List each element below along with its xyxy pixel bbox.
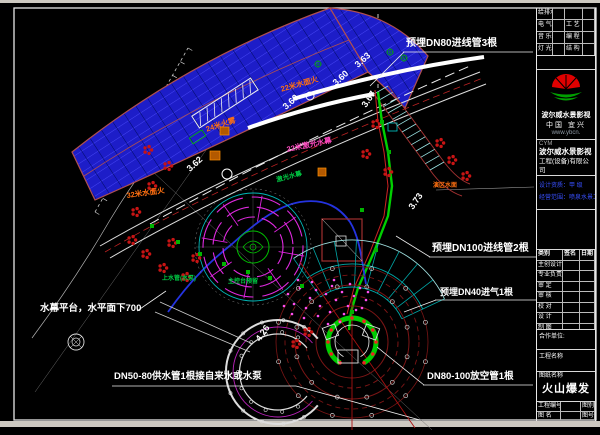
title-block: 给排水 电 气 工 艺 音 乐 编 程 灯 光 结 构 bbox=[536, 8, 596, 421]
feature-console: 主控台预留 bbox=[228, 279, 258, 285]
sig-row-label: 主创设计 bbox=[537, 261, 563, 271]
partner-label: 合作单位: bbox=[537, 330, 595, 350]
sheet-title: 火山爆发 bbox=[539, 380, 593, 398]
annotation-dn100-conduit: 预埋DN100进线管2根 bbox=[432, 244, 529, 255]
company-name-line2: 工程(设备)有限公司 bbox=[539, 157, 593, 175]
sig-row-label: 校 对 bbox=[537, 303, 563, 313]
feature-water-supply: 上水管(水泵) bbox=[162, 276, 196, 282]
company-logo-icon bbox=[546, 72, 586, 104]
steps-band bbox=[374, 86, 470, 196]
sig-row-label: 审 核 bbox=[537, 292, 563, 302]
discipline-cell: 电 气 bbox=[537, 20, 553, 31]
signature-table: 类别 签名 日期 主创设计 专业负责 审 定 审 核 校 对 设 计 制 图 bbox=[537, 250, 595, 330]
company-name-line1: 波尔威水景影视 bbox=[539, 147, 593, 157]
annotation-supply-pipe: DN50-80供水管1根接自来水或水泵 bbox=[114, 372, 262, 382]
company-block: CYM 波尔威水景影视 工程(设备)有限公司 bbox=[537, 140, 595, 176]
elevation-label: 3.73 bbox=[406, 191, 424, 211]
brand-region: 中国 宜兴 bbox=[537, 120, 595, 130]
sheet-name-block: 图纸名称 火山爆发 bbox=[537, 372, 595, 402]
brand-name: 波尔威水景影视 bbox=[537, 110, 595, 120]
brand-website: www.ybcn. bbox=[537, 130, 595, 136]
project-name-label: 工程名称 bbox=[537, 350, 595, 372]
sig-row-label: 审 定 bbox=[537, 282, 563, 292]
annotation-curtain-platform: 水幕平台，水平面下700 bbox=[40, 304, 141, 314]
elevation-label: 4.26 bbox=[253, 323, 271, 343]
drawing-no-label: 图 名 bbox=[537, 412, 561, 421]
brand-block: 波尔威水景影视 中国 宜兴 www.ybcn. bbox=[537, 70, 595, 140]
green-supply-pipe bbox=[349, 92, 392, 330]
discipline-cell: 灯 光 bbox=[537, 44, 553, 55]
discipline-cell: 给排水 bbox=[537, 8, 553, 19]
sig-row-label: 设 计 bbox=[537, 313, 563, 323]
viewing-platform bbox=[195, 189, 311, 305]
annotation-dn40-air: 预埋DN40进气1根 bbox=[440, 288, 513, 297]
sig-row-label: 专业负责 bbox=[537, 271, 563, 281]
loop-walkway bbox=[155, 302, 318, 425]
sig-header: 类别 bbox=[537, 250, 563, 260]
discipline-cell: 音 乐 bbox=[537, 32, 553, 43]
sheet-name-label: 图纸名称 bbox=[539, 372, 593, 380]
note-line: 设计资质：甲 级 bbox=[539, 180, 593, 192]
cad-sheet: 3.60 3.60 3.63 3.62 3.67 3.73 4.26 预埋DN8… bbox=[0, 0, 600, 435]
note-line: 经营范围：喷泉水景工程 bbox=[539, 192, 593, 204]
project-no-label: 工程编号 bbox=[537, 402, 561, 411]
annotation-drain-pipe: DN80-100放空管1根 bbox=[427, 372, 514, 382]
footer-table: 工程编号 图别 图 名 图号 bbox=[537, 402, 595, 420]
company-notes: 设计资质：甲 级 经营范围：喷泉水景工程 bbox=[537, 176, 595, 210]
drawing-canvas[interactable]: 3.60 3.60 3.63 3.62 3.67 3.73 4.26 bbox=[0, 0, 600, 435]
annotation-dn80-conduit: 预埋DN80进线管3根 bbox=[406, 39, 497, 50]
discipline-sign-table: 给排水 电 气 工 艺 音 乐 编 程 灯 光 结 构 bbox=[537, 8, 595, 56]
feature-stage-water: 演区水面 bbox=[433, 183, 457, 189]
grandstand-seating bbox=[72, 8, 428, 200]
